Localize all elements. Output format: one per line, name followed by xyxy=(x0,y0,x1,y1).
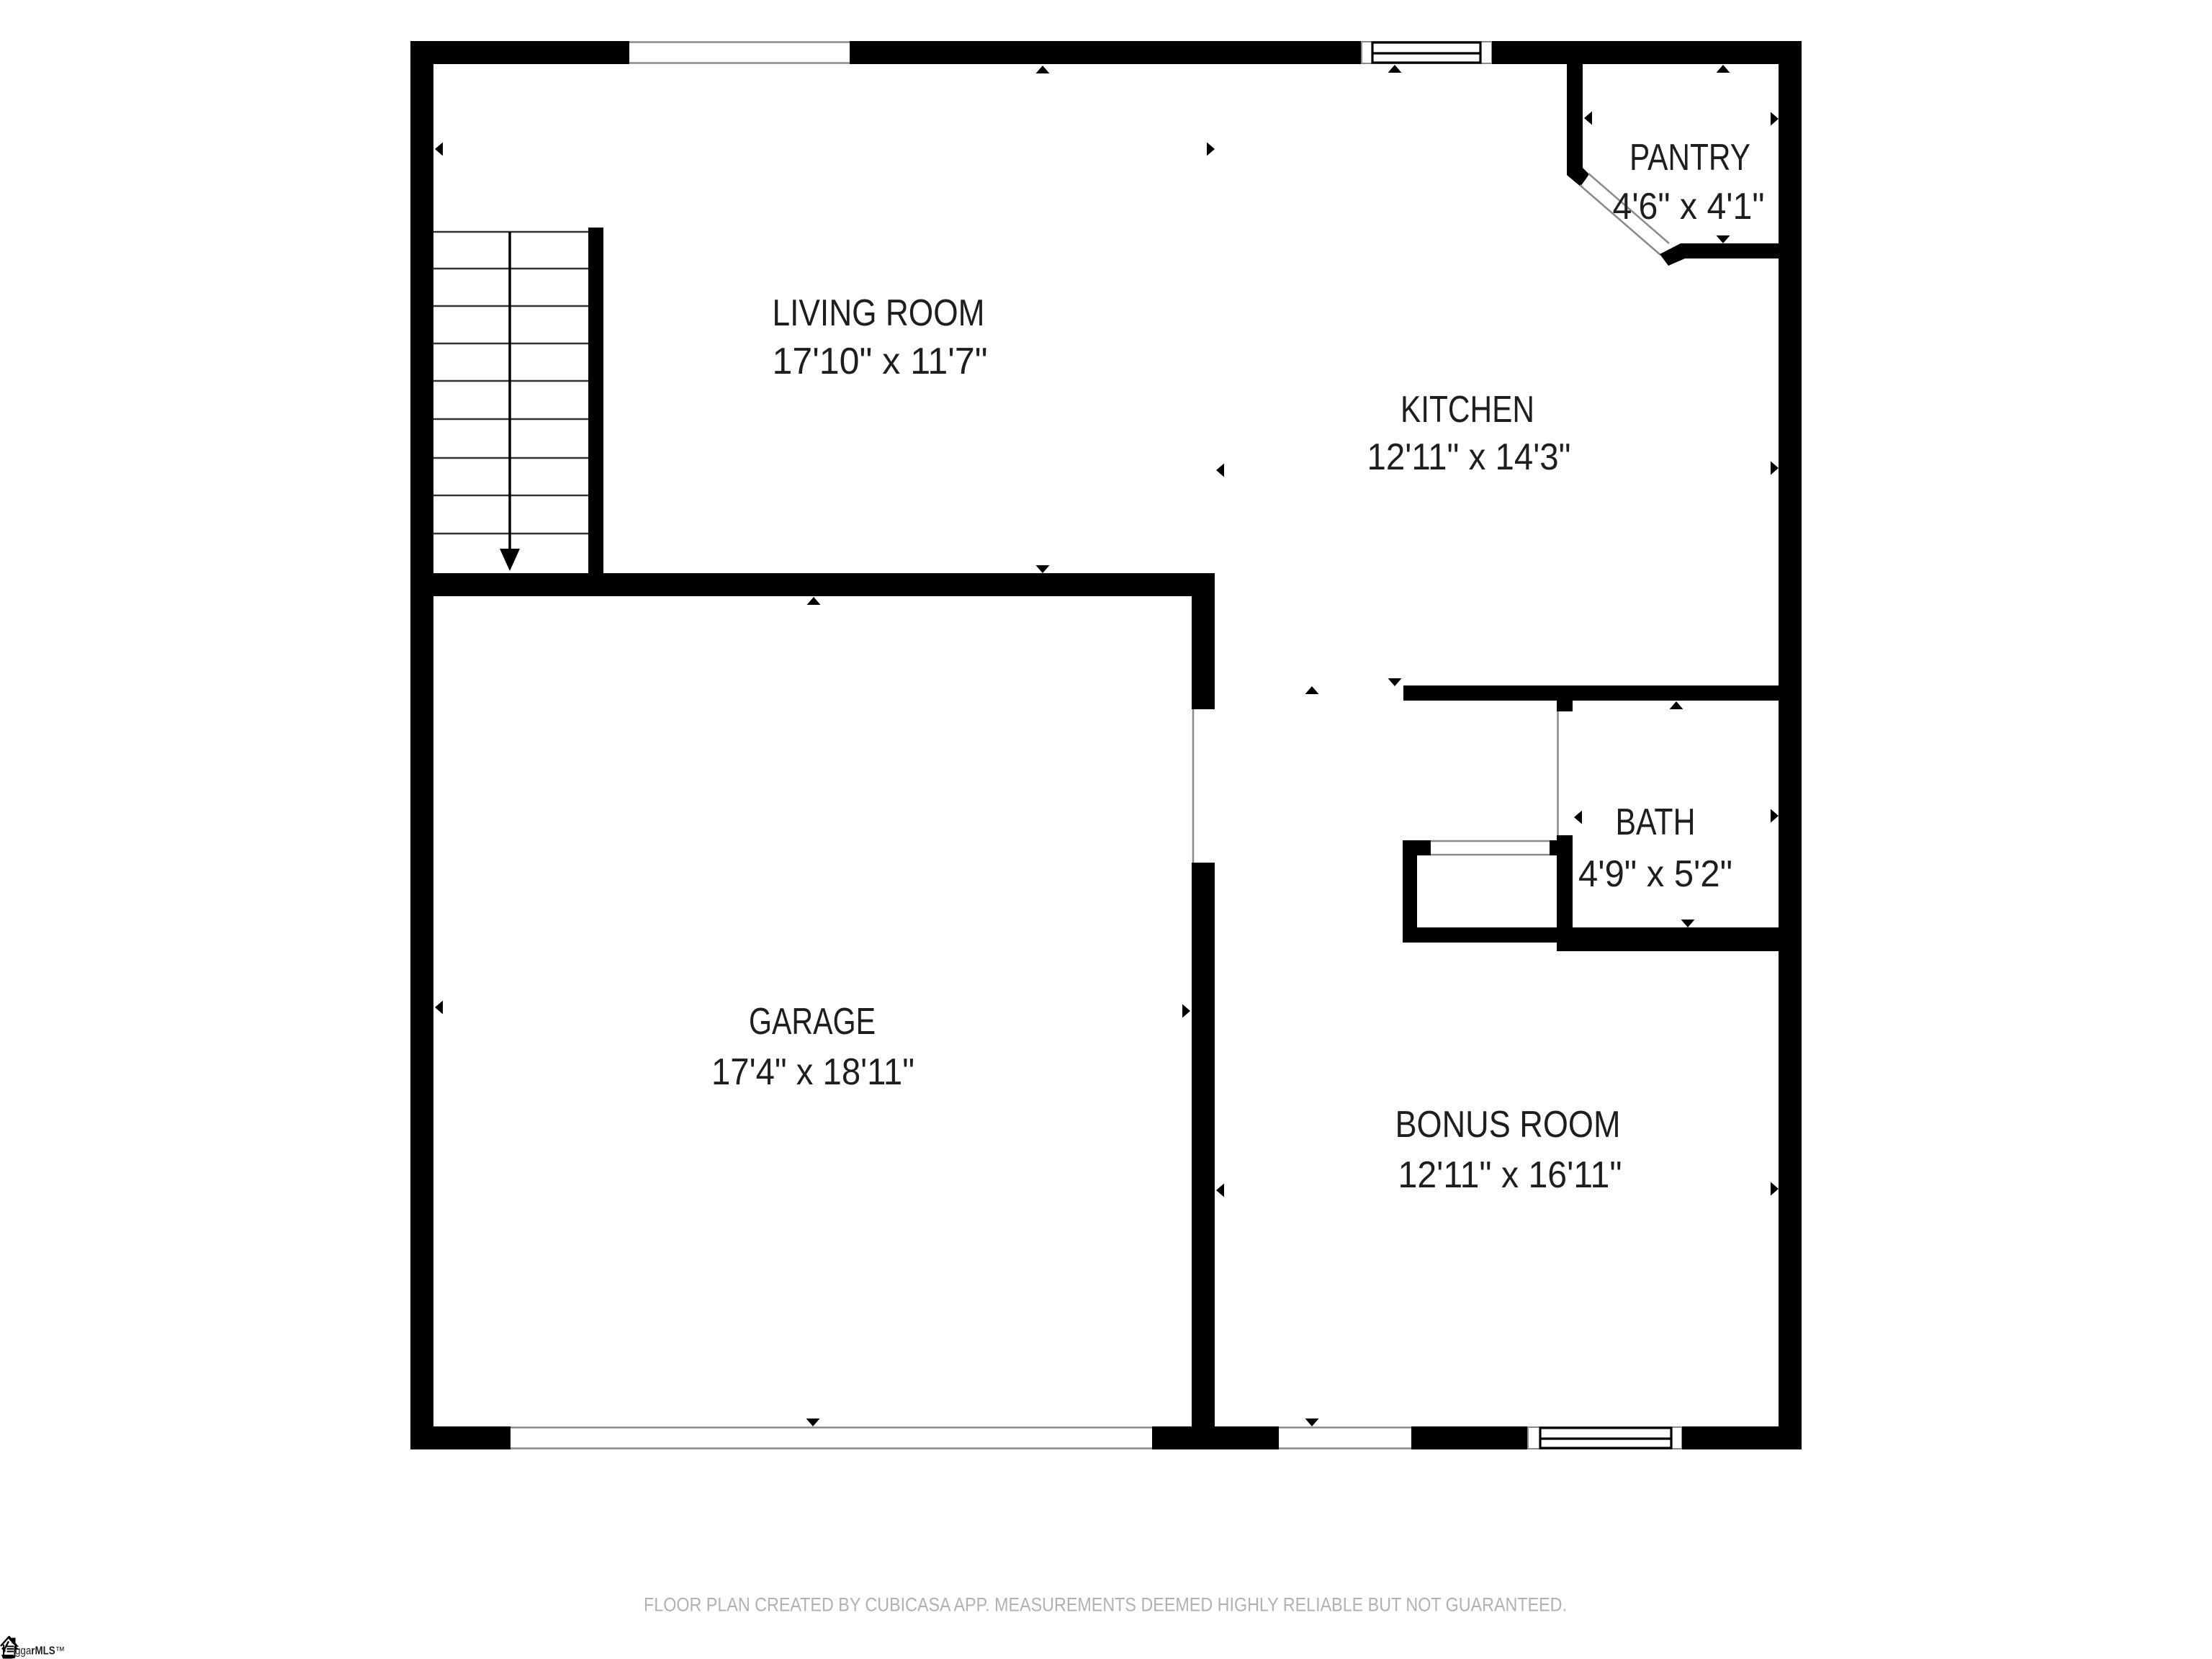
svg-text:12'11" x 14'3": 12'11" x 14'3" xyxy=(1367,436,1571,478)
svg-text:LIVING ROOM: LIVING ROOM xyxy=(773,292,985,334)
svg-text:ggarMLS™: ggarMLS™ xyxy=(15,1645,65,1658)
svg-text:4'9" x 5'2": 4'9" x 5'2" xyxy=(1578,853,1732,895)
svg-text:17'10" x 11'7": 17'10" x 11'7" xyxy=(773,341,988,382)
svg-text:12'11" x 16'11": 12'11" x 16'11" xyxy=(1398,1154,1622,1196)
svg-text:GARAGE: GARAGE xyxy=(749,1001,876,1043)
svg-text:BONUS ROOM: BONUS ROOM xyxy=(1395,1104,1621,1146)
svg-text:BATH: BATH xyxy=(1616,801,1696,843)
svg-text:PANTRY: PANTRY xyxy=(1629,137,1750,179)
svg-text:17'4" x 18'11": 17'4" x 18'11" xyxy=(711,1051,914,1093)
svg-text:FLOOR PLAN CREATED BY CUBICASA: FLOOR PLAN CREATED BY CUBICASA APP. MEAS… xyxy=(644,1594,1567,1616)
svg-text:4'6" x 4'1": 4'6" x 4'1" xyxy=(1613,186,1765,228)
svg-text:KITCHEN: KITCHEN xyxy=(1401,389,1534,431)
